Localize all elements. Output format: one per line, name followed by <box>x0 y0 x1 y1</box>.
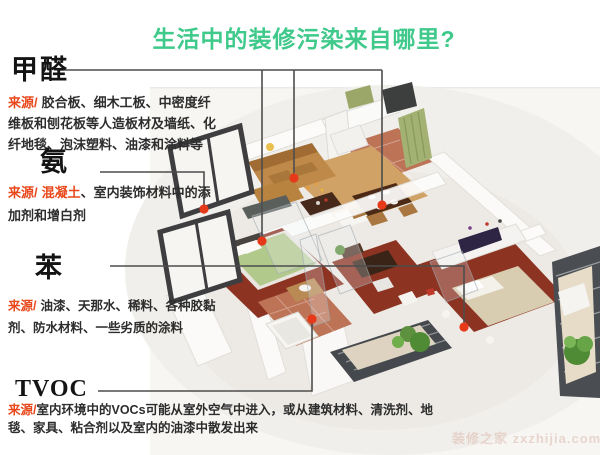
label-ammonia: 氨 <box>40 148 67 176</box>
source-prefix-tvoc: 来源/ <box>8 403 36 417</box>
source-text-tvoc: 室内环境中的VOCs可能从室外空气中进入，或从建筑材料、清洗剂、地毯、家具、粘合… <box>8 403 433 435</box>
source-prefix-benzene: 来源/ <box>8 299 36 313</box>
source-prefix-formaldehyde: 来源/ <box>8 95 38 110</box>
site-watermark: 装修之家 zxzhijia.com <box>452 428 600 447</box>
source-prefix-ammonia: 来源/ <box>8 185 38 200</box>
infographic-root: 生活中的装修污染来自哪里? 甲醛 来源/胶合板、细木工板、中密度纤维板和刨花板等… <box>0 0 600 455</box>
source-highlight-ammonia: 混凝土 <box>42 185 81 200</box>
source-text-benzene: 油漆、天那水、稀料、各种胶黏剂、防水材料、一些劣质的涂料 <box>8 299 216 335</box>
source-text-formaldehyde: 胶合板、细木工板、中密度纤维板和刨花板等人造板材及墙纸、化纤地毯、泡沫塑料、油漆… <box>8 95 216 152</box>
source-tvoc: 来源/室内环境中的VOCs可能从室外空气中进入，或从建筑材料、清洗剂、地毯、家具… <box>8 401 448 437</box>
source-formaldehyde: 来源/胶合板、细木工板、中密度纤维板和刨花板等人造板材及墙纸、化纤地毯、泡沫塑料… <box>8 92 222 155</box>
right-balcony <box>552 246 600 398</box>
source-text-ammonia: 、室内装饰材料中的添加剂和增白剂 <box>8 185 211 223</box>
label-formaldehyde: 甲醛 <box>11 56 69 84</box>
label-tvoc: TVOC <box>15 377 88 402</box>
source-benzene: 来源/油漆、天那水、稀料、各种胶黏剂、防水材料、一些劣质的涂料 <box>8 296 236 340</box>
page-title: 生活中的装修污染来自哪里? <box>152 20 455 54</box>
label-benzene: 苯 <box>35 254 62 282</box>
source-ammonia: 来源/混凝土、室内装饰材料中的添加剂和增白剂 <box>8 181 216 228</box>
